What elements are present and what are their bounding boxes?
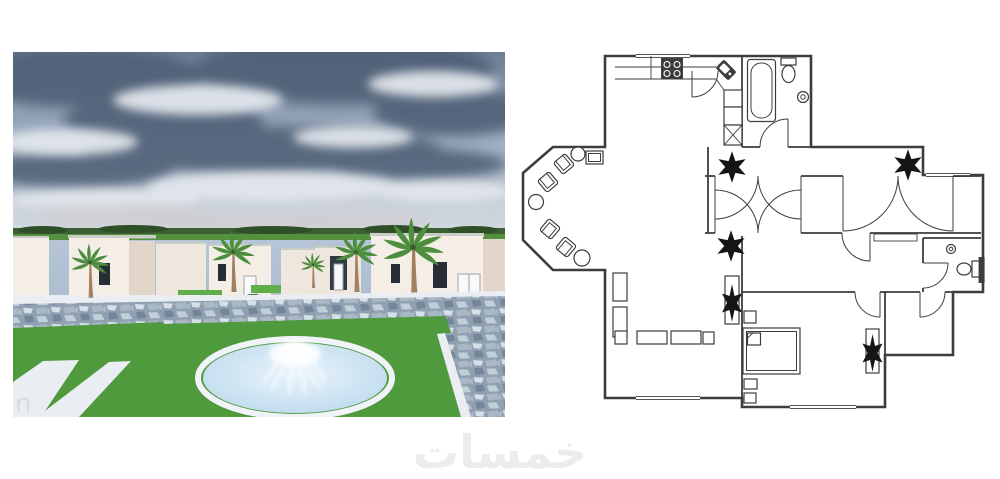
hall-lower-double-door bbox=[715, 190, 801, 233]
villa-entrance-building bbox=[315, 248, 361, 298]
pillow bbox=[748, 333, 761, 345]
wc-room bbox=[947, 245, 985, 284]
dark-window bbox=[218, 264, 226, 281]
wc-sink-icon bbox=[947, 245, 956, 254]
floor-plan-svg bbox=[520, 45, 990, 415]
bathroom-door bbox=[760, 119, 788, 147]
render-svg bbox=[13, 52, 505, 417]
sofa bbox=[613, 273, 627, 301]
hall-upper-double-door bbox=[715, 176, 801, 219]
kitchen bbox=[615, 56, 742, 145]
watermark-fragment: n bbox=[15, 389, 31, 419]
terrace-double-door bbox=[843, 176, 953, 231]
horizon-haze bbox=[13, 204, 505, 230]
sofa bbox=[671, 331, 701, 344]
corridor-window bbox=[874, 234, 917, 241]
bedroom-door bbox=[855, 292, 880, 317]
kitchen-cabinets bbox=[724, 90, 742, 145]
page-canvas: خمسات n bbox=[0, 0, 1000, 479]
white-door bbox=[334, 264, 343, 290]
sofa bbox=[637, 331, 667, 344]
kitchen-sink-icon bbox=[715, 59, 736, 80]
windows bbox=[636, 52, 970, 411]
wc-toilet-bowl bbox=[957, 263, 971, 275]
wc-door bbox=[923, 263, 948, 288]
bathroom-sink-icon bbox=[798, 92, 809, 103]
kitchen-door bbox=[692, 71, 718, 97]
toilet-icon bbox=[781, 58, 796, 83]
nightstand bbox=[744, 393, 756, 403]
side-table-round bbox=[529, 195, 544, 210]
watermark-logo: خمسات bbox=[0, 425, 1000, 479]
architectural-render-image bbox=[13, 52, 505, 417]
dark-window bbox=[979, 257, 985, 283]
living-room-sofas bbox=[613, 273, 714, 344]
fountain-pool bbox=[198, 339, 392, 417]
stove-icon bbox=[661, 58, 683, 79]
corridor-door bbox=[842, 233, 870, 261]
dark-window bbox=[433, 262, 447, 288]
side-table-round bbox=[571, 147, 585, 161]
side-table-round bbox=[574, 250, 590, 266]
bathroom bbox=[748, 58, 809, 122]
villa-left bbox=[69, 238, 155, 300]
sofa-corner bbox=[615, 331, 627, 344]
bedroom bbox=[743, 311, 800, 403]
floor-plan-drawing bbox=[520, 45, 990, 415]
store-room-door bbox=[920, 292, 945, 317]
sofa-corner bbox=[703, 332, 714, 344]
nightstand bbox=[744, 379, 757, 389]
villa-far-left bbox=[13, 238, 49, 300]
bathtub-icon bbox=[748, 60, 776, 122]
villa-background-left bbox=[156, 244, 206, 298]
nightstand bbox=[744, 311, 756, 323]
dark-window bbox=[99, 263, 110, 285]
bed-icon bbox=[743, 328, 800, 374]
majlis-seating bbox=[529, 147, 604, 266]
dark-window bbox=[391, 264, 400, 283]
